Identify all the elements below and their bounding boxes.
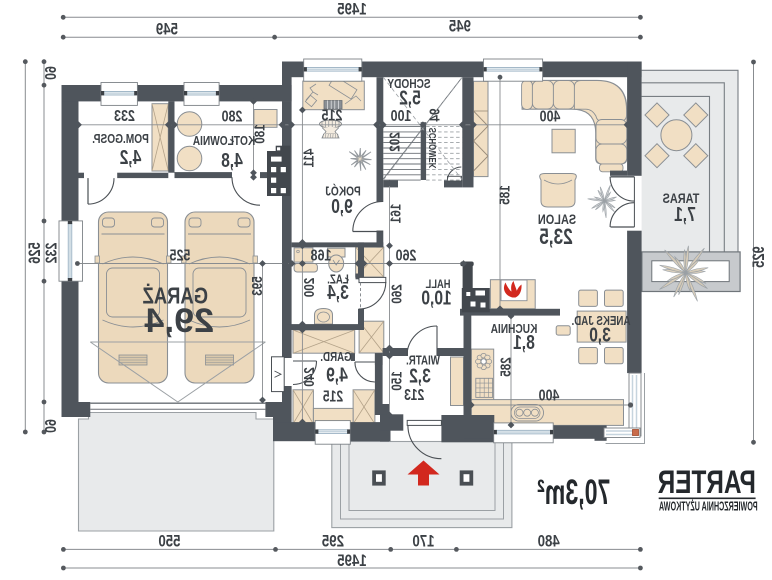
svg-text:4,8: 4,8 (221, 149, 243, 171)
svg-text:POM.GOSP.: POM.GOSP. (92, 132, 149, 146)
svg-text:480: 480 (538, 532, 560, 551)
svg-text:945: 945 (448, 17, 471, 36)
svg-text:1495: 1495 (337, 0, 367, 19)
svg-text:150: 150 (388, 371, 405, 391)
svg-text:549: 549 (156, 20, 178, 39)
svg-text:GARD.: GARD. (320, 351, 351, 364)
svg-text:60: 60 (43, 66, 61, 80)
svg-text:280: 280 (222, 108, 243, 126)
svg-text:7,1: 7,1 (674, 203, 696, 225)
svg-text:60: 60 (43, 419, 61, 433)
svg-text:3,0: 3,0 (589, 324, 611, 346)
svg-text:70,3m²: 70,3m² (537, 473, 610, 512)
svg-text:3,4: 3,4 (327, 281, 349, 303)
svg-text:215: 215 (322, 107, 343, 125)
svg-text:232: 232 (43, 243, 61, 264)
svg-text:526: 526 (27, 242, 45, 263)
svg-text:POWIERZCHNIA UŻYTKOWA: POWIERZCHNIA UŻYTKOWA (659, 498, 758, 514)
svg-text:202: 202 (386, 132, 403, 152)
svg-text:400: 400 (540, 108, 561, 126)
svg-text:200: 200 (301, 278, 318, 298)
svg-text:550: 550 (158, 532, 180, 551)
svg-text:4,9: 4,9 (326, 364, 348, 386)
svg-text:23,5: 23,5 (539, 225, 572, 250)
svg-text:94: 94 (426, 108, 443, 121)
svg-text:400: 400 (539, 387, 560, 405)
svg-text:170: 170 (412, 532, 434, 551)
svg-text:240: 240 (301, 367, 318, 387)
svg-text:10,0: 10,0 (421, 287, 451, 309)
svg-text:295: 295 (321, 532, 344, 551)
svg-text:9,0: 9,0 (331, 195, 353, 217)
svg-text:161: 161 (387, 204, 404, 224)
svg-text:215: 215 (323, 387, 343, 405)
svg-text:925: 925 (751, 246, 769, 267)
svg-text:3,2: 3,2 (409, 365, 431, 387)
svg-text:4,2: 4,2 (120, 146, 142, 168)
svg-text:168: 168 (311, 247, 332, 265)
svg-text:185: 185 (496, 185, 513, 205)
svg-text:8,1: 8,1 (513, 331, 535, 353)
svg-text:5,2: 5,2 (399, 87, 421, 109)
svg-text:593: 593 (249, 276, 266, 296)
svg-text:411: 411 (300, 149, 317, 168)
svg-text:260: 260 (396, 247, 417, 265)
svg-text:233: 233 (114, 107, 135, 125)
svg-text:KOTŁOWNIA: KOTŁOWNIA (192, 134, 255, 148)
svg-text:260: 260 (388, 284, 405, 304)
svg-text:29,4: 29,4 (144, 302, 214, 340)
svg-text:SCHOWEK: SCHOWEK (427, 128, 438, 169)
svg-text:285: 285 (497, 357, 514, 377)
svg-text:1495: 1495 (337, 552, 367, 571)
svg-text:PARTER: PARTER (658, 465, 756, 501)
svg-text:100: 100 (391, 108, 412, 126)
svg-text:213: 213 (404, 386, 424, 404)
svg-text:525: 525 (170, 247, 191, 265)
